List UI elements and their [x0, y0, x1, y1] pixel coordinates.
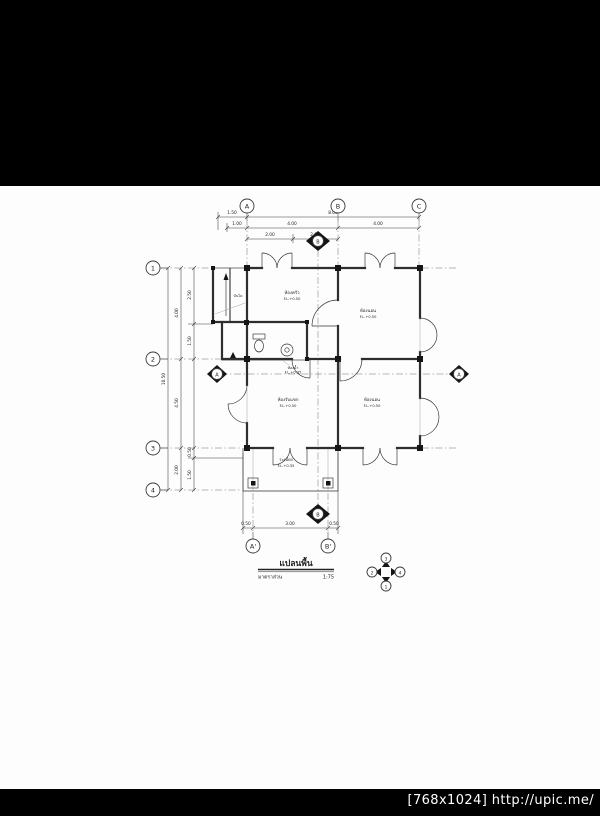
room-label-kitchen: ห้องครัว	[284, 290, 300, 296]
toilet-fixture	[255, 340, 264, 352]
svg-text:F.L.+0.50: F.L.+0.50	[360, 315, 378, 319]
svg-text:A: A	[457, 373, 461, 379]
dim-label: 2.50	[187, 290, 193, 300]
svg-text:A: A	[215, 373, 219, 379]
dim-label: 10.50	[161, 373, 167, 386]
svg-text:B: B	[316, 513, 320, 519]
grid-col-b: B	[336, 203, 340, 211]
svg-text:F.L.+0.50: F.L.+0.50	[364, 404, 382, 408]
room-labels: ห้องครัว F.L.+0.50 ห้องนอน F.L.+0.50 ห้อ…	[234, 290, 382, 468]
scale-value: 1:75	[323, 575, 334, 581]
floor-drain	[230, 352, 236, 358]
drawing-title: แปลนพื้น	[279, 556, 312, 569]
grid-col-a: A	[245, 203, 250, 211]
room-label-stair: บันได	[234, 293, 244, 298]
drawing-sheet: 1.50 8.00 1.00 4.00 4.00 2.00 2.00 10.50…	[0, 186, 600, 789]
section-marker-b-bottom: B	[306, 504, 330, 524]
dim-label: 1.50	[187, 470, 193, 480]
sink-fixture	[281, 344, 293, 356]
section-lines	[207, 250, 463, 506]
floor-plan-svg: 1.50 8.00 1.00 4.00 4.00 2.00 2.00 10.50…	[0, 186, 600, 789]
dim-label: 2.00	[174, 465, 180, 475]
title-block: แปลนพื้น มาตราส่วน 1:75	[258, 556, 334, 581]
room-label-bedroom-ne: ห้องนอน	[360, 308, 376, 314]
room-label-porch: ระเบียง	[279, 457, 292, 463]
scale-label: มาตราส่วน	[258, 575, 283, 581]
dim-label: 3.00	[285, 521, 295, 527]
compass-icon: 3 2 4 1	[367, 553, 405, 591]
compass-bottom: 1	[385, 585, 388, 591]
bathroom	[222, 322, 307, 360]
grid-bubbles: A B C 1 2 3 4 A' B'	[146, 199, 426, 553]
room-label-bedroom-se: ห้องนอน	[364, 397, 380, 403]
compass-left: 2	[371, 571, 374, 577]
grid-row-1: 1	[151, 265, 155, 273]
grid-row-4: 4	[151, 487, 155, 495]
room-label-bath: ห้องน้ำ	[288, 365, 299, 370]
dim-label: 4.00	[287, 221, 297, 227]
svg-text:F.L.+0.35: F.L.+0.35	[285, 371, 302, 375]
dim-label: 1.00	[232, 221, 242, 227]
watermark-text: [768x1024] http://upic.me/	[407, 793, 594, 808]
dim-label: 4.50	[174, 398, 180, 408]
dim-label: 0.50	[329, 521, 339, 527]
dim-label: 0.50	[241, 521, 251, 527]
grid-col-a-prime: A'	[250, 543, 256, 551]
section-marker-a-right: A	[449, 365, 469, 383]
svg-text:F.L.+0.35: F.L.+0.35	[278, 464, 295, 468]
dim-label: 0.50	[187, 447, 193, 457]
toilet-tank	[253, 334, 265, 339]
dimension-labels: 1.50 8.00 1.00 4.00 4.00 2.00 2.00 10.50…	[161, 210, 383, 527]
porch	[243, 448, 338, 491]
svg-text:B: B	[316, 240, 320, 246]
room-label-living: ห้องรับแขก	[278, 397, 299, 403]
grid-row-2: 2	[151, 356, 155, 364]
grid-row-3: 3	[151, 445, 155, 453]
grid-col-b-prime: B'	[325, 543, 331, 551]
svg-text:F.L.+0.50: F.L.+0.50	[284, 297, 302, 301]
dim-label: 1.50	[227, 210, 237, 216]
letterbox-bar: [768x1024] http://upic.me/	[0, 789, 600, 816]
dim-label: 4.00	[373, 221, 383, 227]
compass-top: 3	[385, 557, 388, 563]
svg-text:F.L.+0.50: F.L.+0.50	[280, 404, 298, 408]
dim-label: 2.00	[265, 232, 275, 238]
compass-right: 4	[399, 571, 402, 577]
section-marker-a-left: A	[207, 365, 227, 383]
image-host-page: { "watermark": "[768x1024] http://upic.m…	[0, 0, 600, 816]
grid-col-c: C	[417, 203, 422, 211]
dim-label: 1.50	[187, 336, 193, 346]
dim-label: 4.00	[174, 308, 180, 318]
